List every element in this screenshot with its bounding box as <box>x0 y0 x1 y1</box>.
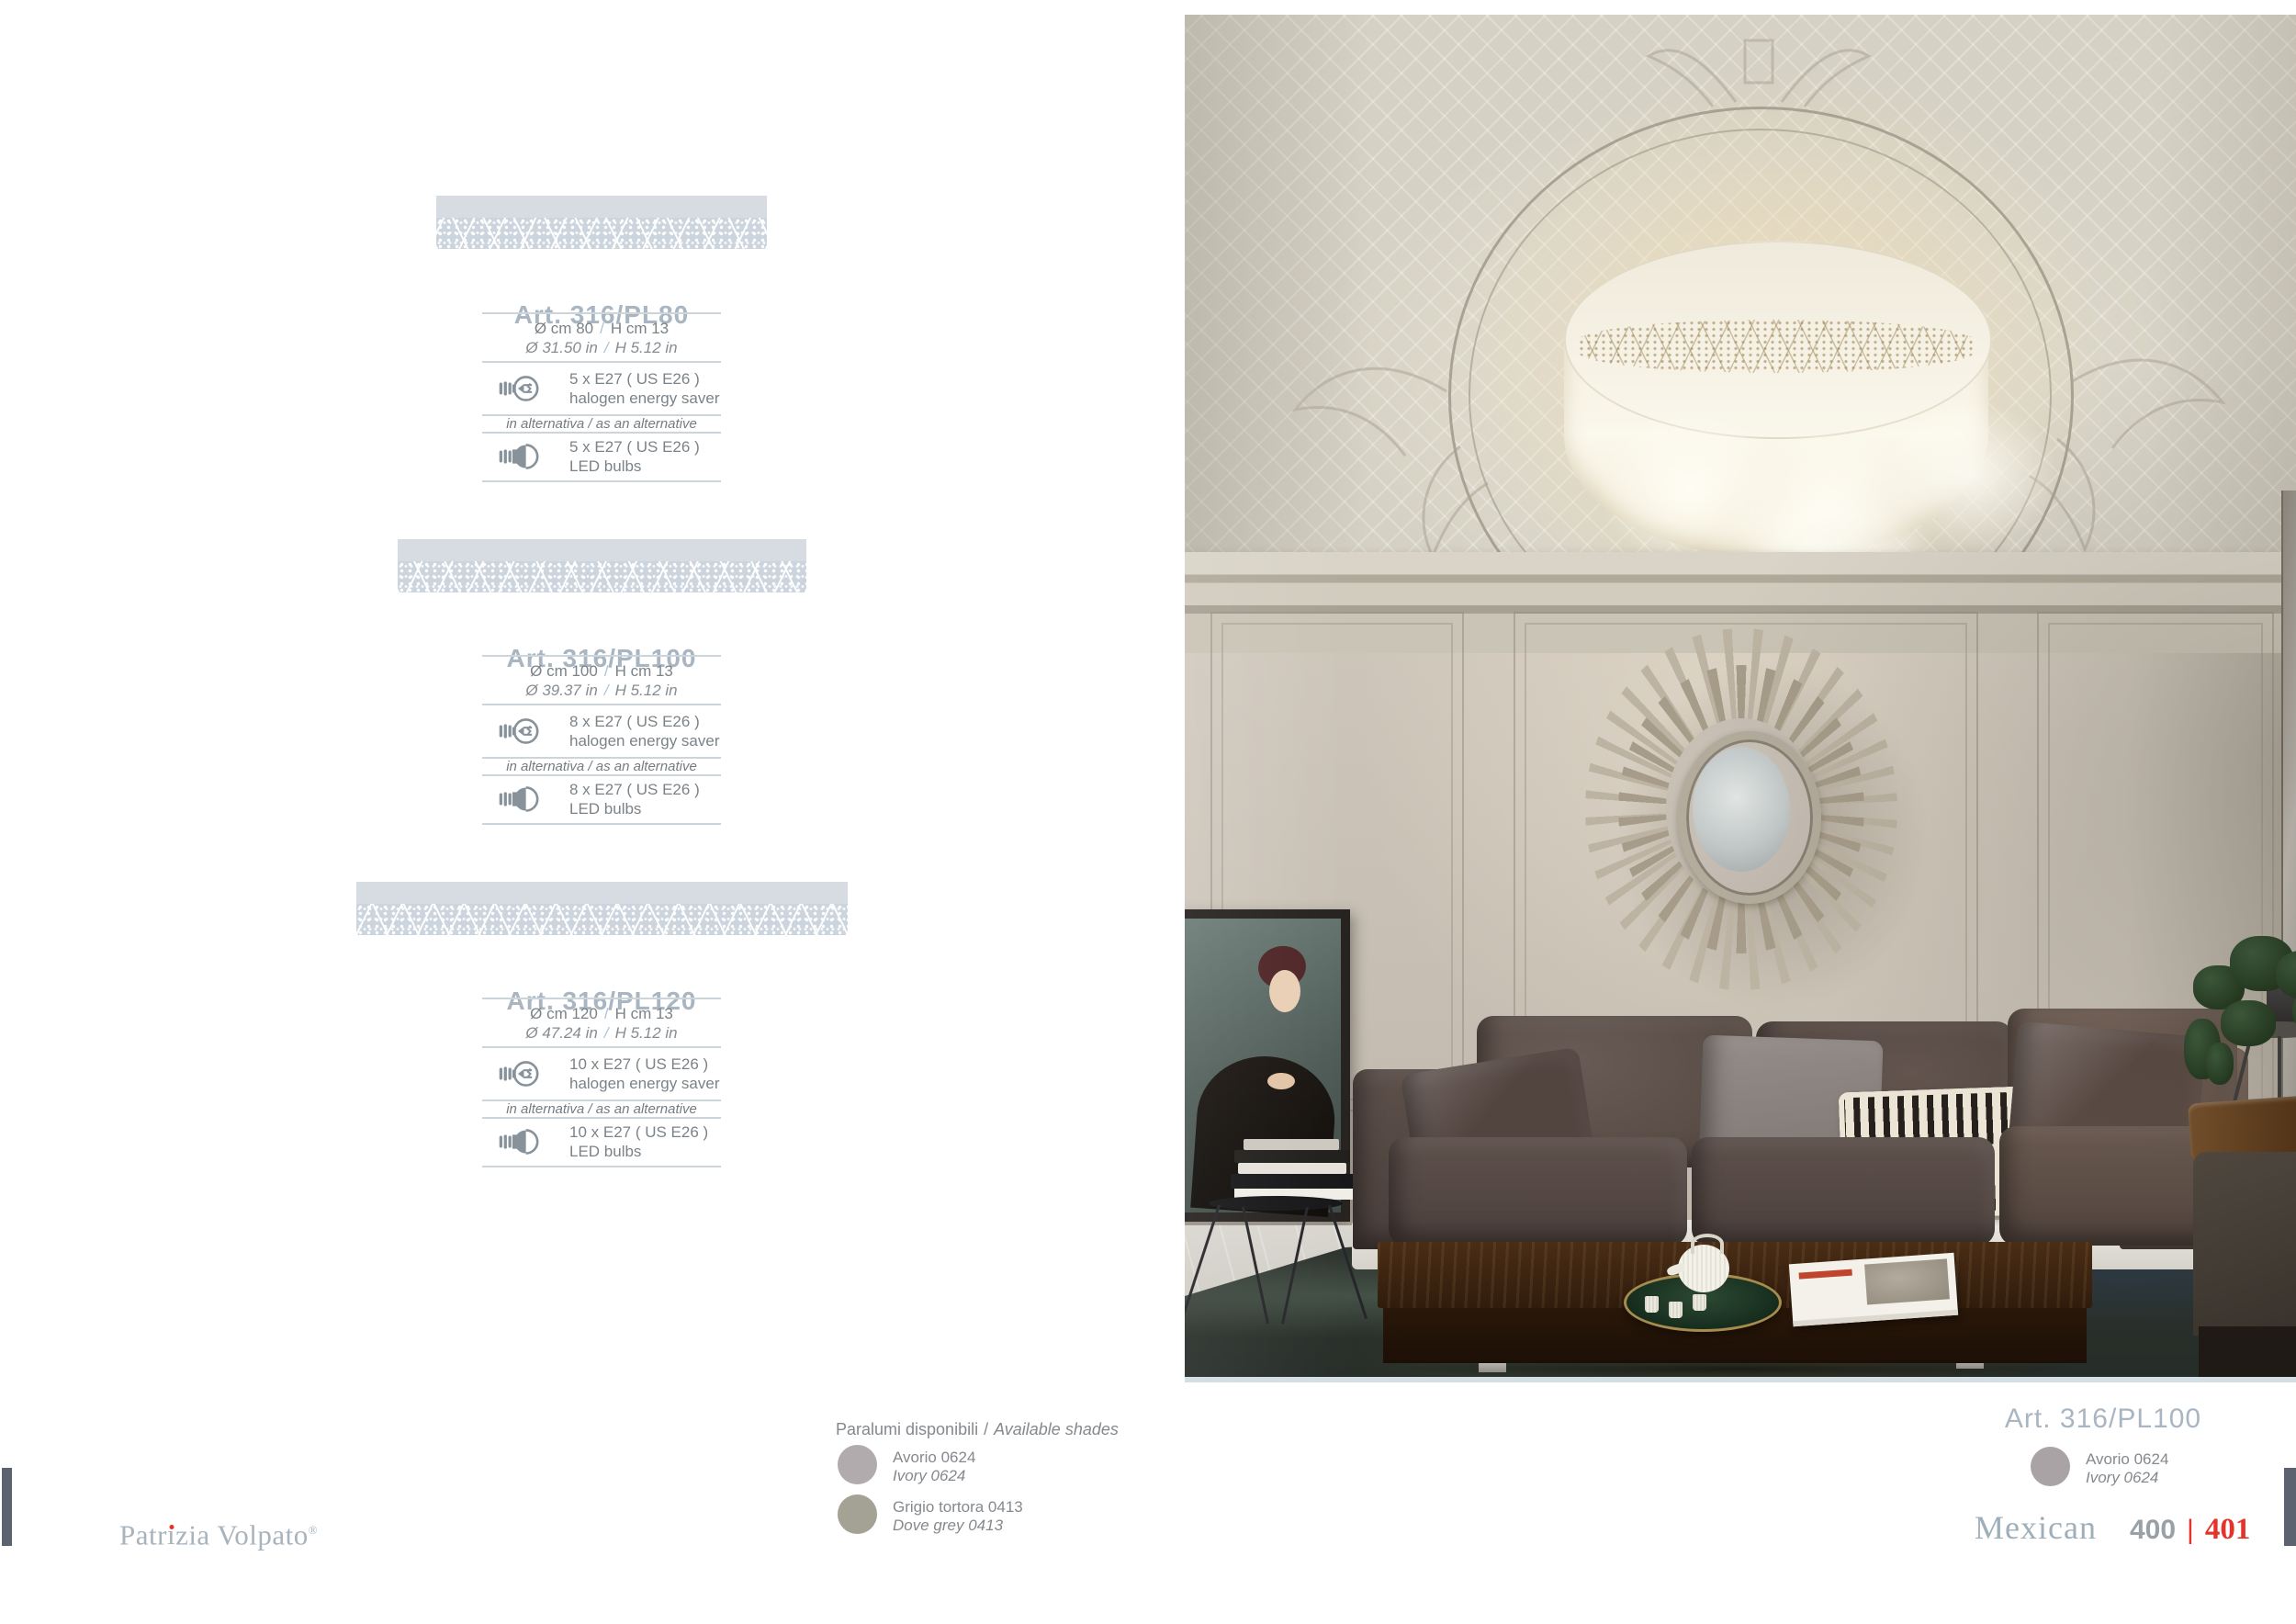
divider <box>482 998 721 999</box>
height-in: H 5.12 in <box>615 1024 678 1042</box>
separator: / <box>604 662 609 680</box>
bulb-qty: 8 x E27 ( US E26 ) <box>569 712 720 731</box>
shade-swatch-dove-grey <box>838 1494 877 1534</box>
sunburst-mirror-glass <box>1693 747 1790 872</box>
spec-table: Ø cm 100/H cm 13 Ø 39.37 in/H 5.12 in 8 … <box>482 655 721 826</box>
dimensions-metric: Ø cm 100/H cm 13 <box>482 661 721 681</box>
height-cm: H cm 13 <box>611 320 669 337</box>
hanging-plant <box>2184 929 2296 1085</box>
sofa-seat-cushion <box>1389 1137 1687 1246</box>
book-stack <box>1225 1139 1363 1200</box>
alternative-note: in alternativa / as an alternative <box>482 416 721 432</box>
divider <box>482 774 721 776</box>
band-top <box>398 539 806 561</box>
bulb-spec-halogen: 10 x E27 ( US E26 ) halogen energy saver <box>482 1054 721 1100</box>
coffee-table-book <box>1789 1253 1958 1326</box>
catalog-page: Art. 316/PL80 Ø cm 80/H cm 13 Ø 31.50 in… <box>0 0 2296 1624</box>
halogen-bulb-icon <box>497 716 541 747</box>
ceiling-lamp-sprig-band <box>1578 320 1975 373</box>
tea-cup <box>1645 1296 1659 1313</box>
shade-name-english: Dove grey 0413 <box>893 1517 1023 1535</box>
divider <box>482 655 721 657</box>
diameter-cm: Ø cm 80 <box>535 320 593 337</box>
divider <box>482 1117 721 1119</box>
bulb-text: 8 x E27 ( US E26 ) LED bulbs <box>569 780 700 818</box>
separator: / <box>984 1420 988 1438</box>
band-sprig-pattern <box>436 218 767 249</box>
dimensions-metric: Ø cm 80/H cm 13 <box>482 319 721 338</box>
shade-name-english: Ivory 0624 <box>893 1467 975 1485</box>
plant-foliage <box>2221 1000 2276 1046</box>
bulb-qty: 5 x E27 ( US E26 ) <box>569 437 700 457</box>
bulb-text: 5 x E27 ( US E26 ) halogen energy saver <box>569 369 720 408</box>
bulb-type: halogen energy saver <box>569 1074 720 1093</box>
book <box>1244 1139 1339 1150</box>
separator: / <box>604 1005 609 1022</box>
diameter-in: Ø 31.50 in <box>525 339 597 356</box>
decorative-shade-band <box>436 196 767 249</box>
armchair-base <box>2199 1326 2296 1382</box>
shade-label: Grigio tortora 0413 Dove grey 0413 <box>893 1498 1023 1535</box>
dimensions-metric: Ø cm 120/H cm 13 <box>482 1004 721 1023</box>
dimensions-imperial: Ø 47.24 in/H 5.12 in <box>482 1023 721 1043</box>
bulb-type: LED bulbs <box>569 1142 708 1161</box>
led-bulb-icon <box>497 1126 541 1157</box>
bulb-spec-halogen: 8 x E27 ( US E26 ) halogen energy saver <box>482 712 721 758</box>
photo-caption-article: Art. 316/PL100 <box>1970 1404 2236 1435</box>
brand-red-dot-i: ı <box>167 1518 175 1551</box>
alternative-note: in alternativa / as an alternative <box>482 759 721 774</box>
shade-name-english: Ivory 0624 <box>2086 1469 2168 1487</box>
bulb-type: halogen energy saver <box>569 389 720 408</box>
separator: / <box>604 682 609 699</box>
bulb-text: 8 x E27 ( US E26 ) halogen energy saver <box>569 712 720 750</box>
alternative-note: in alternativa / as an alternative <box>482 1101 721 1117</box>
bulb-text: 10 x E27 ( US E26 ) halogen energy saver <box>569 1054 720 1093</box>
divider <box>482 1046 721 1048</box>
bulb-qty: 10 x E27 ( US E26 ) <box>569 1054 720 1074</box>
diameter-cm: Ø cm 100 <box>530 662 598 680</box>
sofa-seat-cushion <box>1692 1137 1995 1246</box>
available-shades-heading: Paralumi disponibili/Available shades <box>836 1420 1119 1439</box>
book <box>1238 1163 1346 1174</box>
bulb-qty: 5 x E27 ( US E26 ) <box>569 369 720 389</box>
dimensions: Ø cm 80/H cm 13 Ø 31.50 in/H 5.12 in <box>482 319 721 357</box>
teapot <box>1678 1245 1729 1292</box>
registered-mark: ® <box>309 1523 318 1537</box>
halogen-bulb-icon <box>497 1058 541 1089</box>
band-top <box>356 882 848 904</box>
tea-tray <box>1624 1273 1782 1332</box>
height-in: H 5.12 in <box>615 339 678 356</box>
separator: / <box>604 339 609 356</box>
divider <box>482 480 721 482</box>
tea-cup <box>1669 1302 1683 1318</box>
height-cm: H cm 13 <box>615 662 673 680</box>
divider <box>482 432 721 434</box>
decorative-shade-band <box>398 539 806 592</box>
brand-logo: Patrızia Volpato® <box>119 1514 318 1551</box>
painting-figure-face <box>1269 970 1300 1012</box>
band-sprig-pattern <box>356 904 848 935</box>
diameter-cm: Ø cm 120 <box>530 1005 598 1022</box>
page-number-left: 400 <box>2130 1515 2176 1546</box>
brand-text: Patr <box>119 1518 167 1551</box>
plant-foliage <box>2206 1043 2234 1085</box>
divider <box>482 361 721 363</box>
spec-table: Ø cm 120/H cm 13 Ø 47.24 in/H 5.12 in 10… <box>482 998 721 1168</box>
shade-name-italian: Grigio tortora 0413 <box>893 1498 1023 1517</box>
bulb-spec-led: 8 x E27 ( US E26 ) LED bulbs <box>482 780 721 826</box>
book <box>1234 1150 1350 1163</box>
separator: / <box>600 320 604 337</box>
page-number-separator: | <box>2187 1515 2194 1546</box>
divider <box>482 312 721 314</box>
bulb-text: 10 x E27 ( US E26 ) LED bulbs <box>569 1122 708 1161</box>
page-tab-left <box>2 1468 12 1546</box>
bulb-spec-led: 5 x E27 ( US E26 ) LED bulbs <box>482 437 721 483</box>
halogen-bulb-icon <box>497 373 541 404</box>
painting-figure-hand <box>1267 1073 1295 1089</box>
bulb-spec-halogen: 5 x E27 ( US E26 ) halogen energy saver <box>482 369 721 415</box>
bulb-type: LED bulbs <box>569 457 700 476</box>
bulb-type: LED bulbs <box>569 799 700 818</box>
page-number-right: 401 <box>2205 1513 2251 1547</box>
height-in: H 5.12 in <box>615 682 678 699</box>
divider <box>482 704 721 705</box>
room-photo <box>1185 15 2296 1382</box>
bulb-type: halogen energy saver <box>569 731 720 750</box>
bulb-qty: 10 x E27 ( US E26 ) <box>569 1122 708 1142</box>
heading-english: Available shades <box>994 1420 1119 1438</box>
divider <box>482 823 721 825</box>
shade-label: Avorio 0624 Ivory 0624 <box>2086 1450 2168 1487</box>
bulb-spec-led: 10 x E27 ( US E26 ) LED bulbs <box>482 1122 721 1168</box>
diameter-in: Ø 47.24 in <box>525 1024 597 1042</box>
divider <box>482 1166 721 1167</box>
shade-swatch-ivory <box>2031 1447 2070 1486</box>
spec-table: Ø cm 80/H cm 13 Ø 31.50 in/H 5.12 in 5 x… <box>482 312 721 483</box>
dimensions: Ø cm 100/H cm 13 Ø 39.37 in/H 5.12 in <box>482 661 721 700</box>
bulb-qty: 8 x E27 ( US E26 ) <box>569 780 700 799</box>
shade-name-italian: Avorio 0624 <box>2086 1450 2168 1469</box>
band-top <box>436 196 767 218</box>
shade-name-italian: Avorio 0624 <box>893 1449 975 1467</box>
collection-name: Mexican <box>1975 1508 2097 1547</box>
shade-swatch-ivory <box>838 1445 877 1484</box>
dimensions-imperial: Ø 31.50 in/H 5.12 in <box>482 338 721 357</box>
diameter-in: Ø 39.37 in <box>525 682 597 699</box>
led-bulb-icon <box>497 441 541 472</box>
separator: / <box>604 1024 609 1042</box>
armchair-cushion <box>2193 1152 2296 1336</box>
brand-text: zia Volpato <box>175 1518 309 1551</box>
book <box>1231 1174 1357 1189</box>
band-sprig-pattern <box>398 561 806 592</box>
page-tab-right <box>2284 1468 2296 1546</box>
led-bulb-icon <box>497 784 541 815</box>
height-cm: H cm 13 <box>615 1005 673 1022</box>
footer-pagination: Mexican 400 | 401 <box>1975 1508 2250 1547</box>
dimensions: Ø cm 120/H cm 13 Ø 47.24 in/H 5.12 in <box>482 1004 721 1043</box>
decorative-shade-band <box>356 882 848 935</box>
bulb-text: 5 x E27 ( US E26 ) LED bulbs <box>569 437 700 476</box>
heading-italian: Paralumi disponibili <box>836 1420 978 1438</box>
tea-cup <box>1693 1294 1706 1311</box>
dimensions-imperial: Ø 39.37 in/H 5.12 in <box>482 681 721 700</box>
side-table-top <box>1209 1196 1343 1211</box>
shade-label: Avorio 0624 Ivory 0624 <box>893 1449 975 1485</box>
